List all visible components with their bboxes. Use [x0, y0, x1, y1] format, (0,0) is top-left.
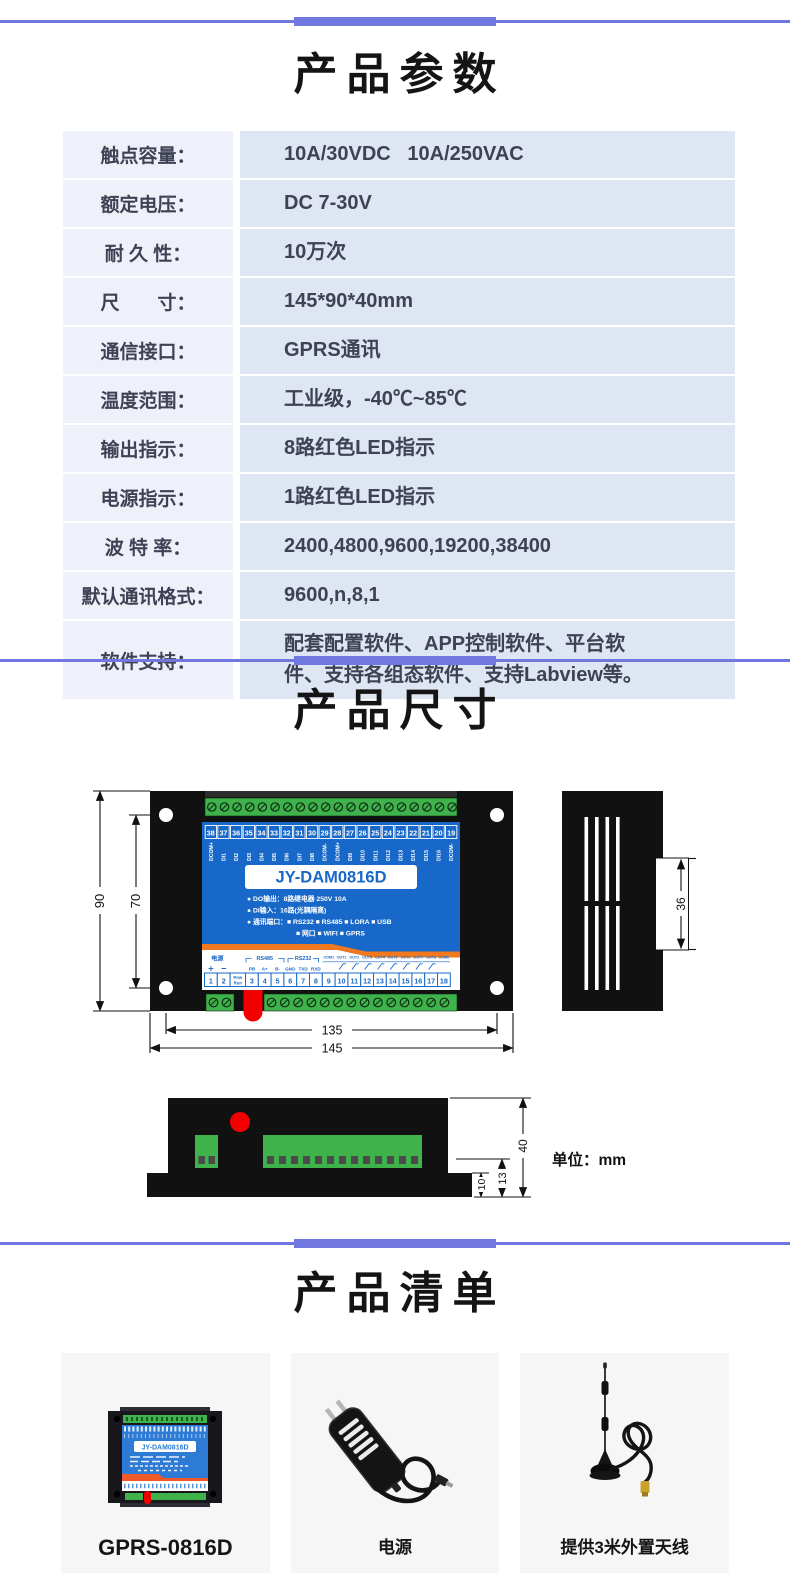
terminal-signal-label: DCOM+ — [209, 842, 215, 861]
terminal-signal-label: DI16 — [437, 850, 443, 861]
product-list: JY-DAM0816D GPRS-0816D — [61, 1353, 729, 1573]
product-detail-page: 产品参数 触点容量：10A/30VDC 10A/250VAC额定电压：DC 7-… — [0, 0, 790, 1594]
dim-40: 40 — [516, 1139, 530, 1153]
terminal-number: 3 — [250, 976, 254, 985]
terminal-signal-label: DI10 — [361, 850, 367, 861]
dim-145: 145 — [322, 1042, 343, 1056]
rs232-pin-label: TXD — [299, 967, 309, 972]
terminal-pin — [351, 1156, 358, 1164]
spec-row: 默认通讯格式：9600,n,8,1 — [63, 572, 735, 619]
spec-value: GPRS通讯 — [240, 327, 735, 374]
rs485-pin-label: PB — [249, 967, 256, 972]
mounting-hole — [490, 981, 504, 995]
terminal-number: 38 — [207, 828, 215, 837]
terminal-signal-label: DI12 — [386, 850, 392, 861]
product-photo-wrap: JY-DAM0816D — [61, 1405, 270, 1510]
parameters-table: 触点容量：10A/30VDC 10A/250VAC额定电压：DC 7-30V耐 … — [63, 131, 735, 699]
terminal-signal-label: DI6 — [285, 853, 291, 861]
terminal-number: 2 — [222, 976, 226, 985]
spec-row: 输出指示：8路红色LED指示 — [63, 425, 735, 472]
spec-label: 通信接口： — [63, 327, 233, 374]
output-channel-label: OUT3 — [362, 956, 372, 960]
spec-label: 电源指示： — [63, 474, 233, 521]
terminal-number: 13 — [376, 976, 384, 985]
spec-value: 9600,n,8,1 — [240, 572, 735, 619]
bottom-flange — [147, 1173, 472, 1197]
dimension-drawing: 3837363534333231302928272625242322212019… — [0, 760, 790, 1230]
spec-value: 工业级，-40℃~85℃ — [240, 376, 735, 423]
output-channel-label: OUT6 — [401, 956, 411, 960]
pow-run-label: Run — [234, 981, 243, 986]
dim-10: 10 — [476, 1179, 488, 1191]
terminal-signal-label: DCOM- — [323, 843, 329, 861]
dim-135: 135 — [322, 1024, 343, 1038]
output-channel-label: OUT1 — [337, 956, 347, 960]
terminal-number: 14 — [389, 976, 397, 985]
terminal-signal-label: DI3 — [247, 853, 253, 861]
spec-row: 通信接口：GPRS通讯 — [63, 327, 735, 374]
rs232-pin-label: RXD — [311, 967, 321, 972]
rs485-pin-label: B- — [275, 967, 280, 972]
product-card-device: JY-DAM0816D GPRS-0816D — [61, 1353, 270, 1573]
output-channel-label: OUT4 — [375, 956, 386, 960]
terminal-pin — [375, 1156, 382, 1164]
terminal-pin — [267, 1156, 274, 1164]
terminal-number: 8 — [314, 976, 318, 985]
product-name: 电源 — [291, 1533, 500, 1558]
power-pin-label: + — [208, 964, 213, 974]
terminal-number: 22 — [409, 828, 417, 837]
terminal-number: 19 — [447, 828, 455, 837]
terminal-pin — [363, 1156, 370, 1164]
terminal-number: 26 — [359, 828, 367, 837]
spec-row: 波 特 率：2400,4800,9600,19200,38400 — [63, 523, 735, 570]
spec-value: 10万次 — [240, 229, 735, 276]
spec-value: 2400,4800,9600,19200,38400 — [240, 523, 735, 570]
terminal-pin — [339, 1156, 346, 1164]
terminal-pin — [315, 1156, 322, 1164]
spec-row: 温度范围：工业级，-40℃~85℃ — [63, 376, 735, 423]
dim-70: 70 — [128, 894, 143, 908]
terminal-number: 36 — [232, 828, 240, 837]
terminal-signal-label: DI14 — [411, 850, 417, 861]
terminal-number: 37 — [219, 828, 227, 837]
bottom-terminal-numbers: 12PowRun3456789101112131415161718 — [205, 973, 451, 987]
terminal-number: 6 — [288, 976, 292, 985]
terminal-number: 27 — [346, 828, 354, 837]
terminal-number: 15 — [402, 976, 410, 985]
output-channel-label: COM1 — [323, 956, 334, 960]
power-pin-label: − — [221, 964, 226, 974]
terminal-signal-label: DI4 — [259, 853, 265, 861]
terminal-signal-label: DI5 — [272, 853, 278, 861]
terminal-number: 31 — [295, 828, 303, 837]
power-label: 电源 — [211, 955, 224, 963]
terminal-number: 5 — [276, 976, 280, 985]
terminal-number: 1 — [209, 976, 213, 985]
dim-13: 13 — [497, 1172, 509, 1184]
terminal-number: 7 — [301, 976, 305, 985]
spec-value: 10A/30VDC 10A/250VAC — [240, 131, 735, 178]
output-channel-label: OUT8 — [426, 956, 436, 960]
spec-value: 1路红色LED指示 — [240, 474, 735, 521]
terminal-number: 12 — [363, 976, 371, 985]
terminal-number: 18 — [440, 976, 448, 985]
terminal-number: 30 — [308, 828, 316, 837]
divider-bar — [294, 17, 496, 26]
terminal-pin — [279, 1156, 286, 1164]
spec-label: 默认通讯格式： — [63, 572, 233, 619]
output-channel-label: OUT7 — [413, 956, 423, 960]
rs485-label: RS485 — [256, 956, 272, 962]
top-terminal-strip — [205, 798, 457, 816]
mini-model-name: JY-DAM0816D — [142, 1445, 189, 1452]
product-photo-wrap — [520, 1361, 729, 1511]
product-card-antenna: 提供3米外置天线 — [520, 1353, 729, 1573]
spec-row: 触点容量：10A/30VDC 10A/250VAC — [63, 131, 735, 178]
divider-bar — [294, 1239, 496, 1248]
model-name: JY-DAM0816D — [276, 869, 387, 887]
bottom-terminal-strip-left — [206, 994, 234, 1011]
spec-line: ● DO输出：8路继电器 250V 10A — [247, 894, 347, 903]
product-name: GPRS-0816D — [61, 1535, 270, 1561]
spec-row: 耐 久 性：10万次 — [63, 229, 735, 276]
terminal-signal-label: DI1 — [221, 853, 227, 861]
terminal-pin — [327, 1156, 334, 1164]
terminal-pin — [399, 1156, 406, 1164]
page-title-product-list: 产品清单 — [0, 1269, 790, 1320]
antenna-image — [545, 1361, 705, 1511]
terminal-number: 24 — [384, 828, 392, 837]
antenna-connector-bottom — [230, 1112, 250, 1132]
terminal-number: 25 — [371, 828, 379, 837]
terminal-number: 11 — [350, 976, 358, 985]
terminal-number: 4 — [263, 976, 267, 985]
terminal-signal-label: DI9 — [348, 853, 354, 861]
section-divider — [0, 1239, 790, 1248]
product-name: 提供3米外置天线 — [520, 1533, 729, 1558]
rs232-pin-label: GND — [285, 967, 296, 972]
spec-label: 耐 久 性： — [63, 229, 233, 276]
mounting-hole — [159, 808, 173, 822]
spec-label: 波 特 率： — [63, 523, 233, 570]
terminal-number: 21 — [422, 828, 430, 837]
terminal-signal-label: DI15 — [424, 850, 430, 861]
terminal-pin — [291, 1156, 298, 1164]
device-product-image: JY-DAM0816D — [90, 1405, 240, 1510]
spec-line: ● DI输入：16路(光耦隔离) — [247, 906, 326, 915]
spec-row: 尺 寸：145*90*40mm — [63, 278, 735, 325]
terminal-number: 28 — [333, 828, 341, 837]
spec-line: ■ 网口 ■ WIFI ■ GPRS — [296, 930, 365, 938]
rs485-pin-label: A+ — [262, 967, 268, 972]
section-divider — [0, 656, 790, 665]
spec-label: 触点容量： — [63, 131, 233, 178]
power-adapter-image — [315, 1388, 475, 1528]
terminal-number: 10 — [338, 976, 346, 985]
terminal-signal-label: DI13 — [399, 850, 405, 861]
terminal-signal-label: DI11 — [373, 850, 379, 861]
terminal-signal-label: DI7 — [297, 853, 303, 861]
dim-36: 36 — [674, 897, 688, 911]
terminal-number: 17 — [427, 976, 435, 985]
product-card-power: 电源 — [291, 1353, 500, 1573]
spec-value: 8路红色LED指示 — [240, 425, 735, 472]
spec-row: 电源指示：1路红色LED指示 — [63, 474, 735, 521]
output-channel-label: COM2 — [439, 956, 450, 960]
terminal-number: 20 — [435, 828, 443, 837]
product-photo-wrap — [291, 1388, 500, 1528]
divider-bar — [294, 656, 496, 665]
spec-value: 145*90*40mm — [240, 278, 735, 325]
terminal-number: 34 — [257, 828, 265, 837]
terminal-number: 33 — [270, 828, 278, 837]
terminal-signal-label: DCOM- — [449, 843, 455, 861]
bottom-view: 40 13 10 单位：mm — [147, 1098, 626, 1197]
antenna-connector — [244, 990, 263, 1022]
spec-label: 输出指示： — [63, 425, 233, 472]
terminal-number: 16 — [414, 976, 422, 985]
spec-label: 温度范围： — [63, 376, 233, 423]
terminal-number: 35 — [245, 828, 253, 837]
front-view: 3837363534333231302928272625242322212019… — [92, 791, 513, 1056]
terminal-number: 32 — [283, 828, 291, 837]
output-channel-label: OUT5 — [388, 956, 398, 960]
output-channel-label: OUT2 — [349, 956, 359, 960]
terminal-number: 23 — [397, 828, 405, 837]
spec-value: DC 7-30V — [240, 180, 735, 227]
terminal-pin — [411, 1156, 418, 1164]
spec-row: 额定电压：DC 7-30V — [63, 180, 735, 227]
page-title-dimensions: 产品尺寸 — [0, 686, 790, 737]
side-view: 36 — [562, 791, 696, 1011]
terminal-number: 29 — [321, 828, 329, 837]
page-title-parameters: 产品参数 — [0, 50, 790, 101]
terminal-pin — [387, 1156, 394, 1164]
terminal-signal-label: DCOM+ — [335, 842, 341, 861]
pow-run-label: Pow — [233, 975, 242, 980]
terminal-number: 9 — [327, 976, 331, 985]
terminal-signal-label: DI8 — [310, 853, 316, 861]
mounting-hole — [159, 981, 173, 995]
rs232-label: RS232 — [295, 956, 311, 962]
terminal-signal-label: DI2 — [234, 853, 240, 861]
spec-label: 额定电压： — [63, 180, 233, 227]
unit-note: 单位：mm — [552, 1150, 626, 1169]
spec-line: ● 通讯端口：■ RS232 ■ RS485 ■ LORA ■ USB — [247, 917, 392, 926]
dim-90: 90 — [92, 894, 107, 908]
mounting-hole — [490, 808, 504, 822]
terminal-pin — [303, 1156, 310, 1164]
section-divider — [0, 17, 790, 26]
spec-label: 尺 寸： — [63, 278, 233, 325]
side-body — [562, 791, 663, 1011]
